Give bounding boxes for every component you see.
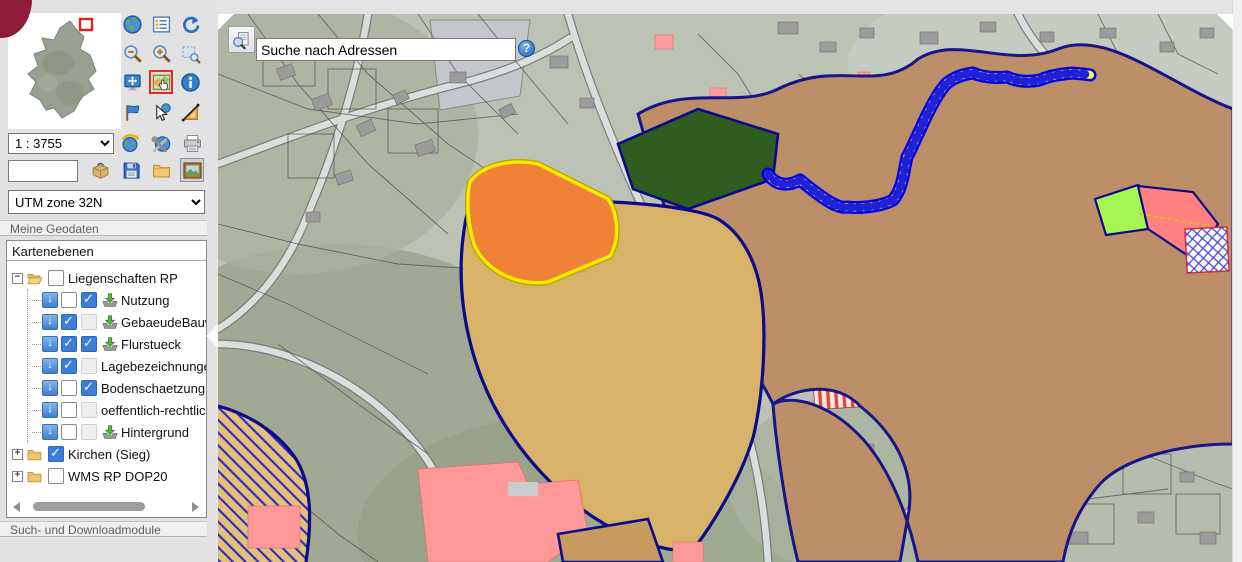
layer-checkbox-1[interactable] xyxy=(61,336,77,352)
map-canvas[interactable] xyxy=(218,14,1233,562)
map-corner-top-right xyxy=(1217,14,1233,30)
address-search-button[interactable] xyxy=(228,26,255,53)
layer-tree-hscrollbar[interactable] xyxy=(11,501,201,512)
scroll-thumb[interactable] xyxy=(33,502,145,511)
folder-closed-icon xyxy=(25,468,44,485)
group-label[interactable]: Kirchen (Sieg) xyxy=(68,447,150,462)
layer-row: ↓Lagebezeichnungen xyxy=(32,355,206,377)
layer-label[interactable]: Bodenschaetzung xyxy=(101,381,205,396)
expander-plus-icon[interactable]: + xyxy=(12,471,23,482)
layer-label[interactable]: Hintergrund xyxy=(121,425,189,440)
layer-down-arrow-button[interactable]: ↓ xyxy=(42,336,58,352)
layer-checkbox-2 xyxy=(81,402,97,418)
layer-label[interactable]: Nutzung xyxy=(121,293,169,308)
group-checkbox[interactable] xyxy=(48,270,64,286)
layer-checkbox-2[interactable] xyxy=(81,292,97,308)
layer-label[interactable]: GebaeudeBauwer xyxy=(121,315,207,330)
layer-checkbox-2 xyxy=(81,358,97,374)
scale-select[interactable]: 1 : 3755 xyxy=(8,133,114,154)
address-search-input[interactable] xyxy=(256,38,516,61)
layer-down-arrow-button[interactable]: ↓ xyxy=(42,380,58,396)
open-folder-icon[interactable] xyxy=(149,158,173,182)
sidebar: 1 : 3755 UTM zone 32N Meine Geodaten Kar… xyxy=(0,0,212,562)
layer-checkbox-1[interactable] xyxy=(61,314,77,330)
tree-guide xyxy=(32,300,41,301)
tree-group-row: +Kirchen (Sieg) xyxy=(11,443,206,465)
scroll-left-arrow-icon[interactable] xyxy=(13,502,20,512)
history-back-icon[interactable] xyxy=(178,12,202,36)
layer-checkbox-2[interactable] xyxy=(81,336,97,352)
layer-row: ↓Hintergrund xyxy=(32,421,206,443)
tree-group-row: +WMS RP DOP20 xyxy=(11,465,206,487)
layer-row: ↓GebaeudeBauwer xyxy=(32,311,206,333)
overview-extent-marker[interactable] xyxy=(80,19,92,30)
layer-tree-title: Kartenebenen xyxy=(7,241,206,261)
map-settings-icon[interactable] xyxy=(149,131,173,155)
state-outline-rlp xyxy=(28,21,96,118)
layer-down-arrow-button[interactable]: ↓ xyxy=(42,358,58,374)
layer-checkbox-2 xyxy=(81,314,97,330)
overview-map[interactable] xyxy=(8,13,121,129)
tree-guide xyxy=(32,344,41,345)
group-label[interactable]: WMS RP DOP20 xyxy=(68,469,167,484)
layer-label[interactable]: Flurstueck xyxy=(121,337,181,352)
redline-globe-icon[interactable] xyxy=(118,131,142,155)
globe-icon[interactable] xyxy=(120,12,144,36)
layer-tree: −Liegenschaften RP↓Nutzung↓GebaeudeBauwe… xyxy=(11,267,206,487)
map-viewport[interactable]: ? xyxy=(218,14,1233,562)
layer-checkbox-1[interactable] xyxy=(61,292,77,308)
section-such-downloadmodule[interactable]: Such- und Downloadmodule xyxy=(0,521,207,537)
layer-checkbox-2 xyxy=(81,424,97,440)
tree-children: ↓Nutzung↓GebaeudeBauwer↓Flurstueck↓Lageb… xyxy=(27,289,206,443)
layer-list-icon[interactable] xyxy=(149,12,173,36)
page-scroll-strip[interactable] xyxy=(1232,0,1242,562)
package-icon[interactable] xyxy=(88,158,112,182)
download-icon xyxy=(101,292,119,308)
tree-group-row: −Liegenschaften RP xyxy=(11,267,206,289)
print-icon[interactable] xyxy=(180,131,204,155)
image-export-icon[interactable] xyxy=(180,158,204,182)
group-checkbox[interactable] xyxy=(48,468,64,484)
layer-label[interactable]: Lagebezeichnungen xyxy=(101,359,207,374)
measure-icon[interactable] xyxy=(178,100,202,124)
layer-down-arrow-button[interactable]: ↓ xyxy=(42,314,58,330)
crs-select[interactable]: UTM zone 32N xyxy=(8,190,205,214)
help-icon[interactable]: ? xyxy=(518,40,535,57)
tree-guide xyxy=(32,432,41,433)
layer-down-arrow-button[interactable]: ↓ xyxy=(42,292,58,308)
expander-plus-icon[interactable]: + xyxy=(12,449,23,460)
layer-row: ↓Nutzung xyxy=(32,289,206,311)
layer-down-arrow-button[interactable]: ↓ xyxy=(42,424,58,440)
layer-checkbox-1[interactable] xyxy=(61,380,77,396)
scroll-right-arrow-icon[interactable] xyxy=(192,502,199,512)
tree-guide xyxy=(32,366,41,367)
layer-tree-panel: Kartenebenen −Liegenschaften RP↓Nutzung↓… xyxy=(6,240,207,518)
expander-minus-icon[interactable]: − xyxy=(12,273,23,284)
layer-down-arrow-button[interactable]: ↓ xyxy=(42,402,58,418)
tree-guide xyxy=(32,410,41,411)
layer-checkbox-1[interactable] xyxy=(61,424,77,440)
layer-label[interactable]: oeffentlich-rechtliche_ xyxy=(101,403,207,418)
zoom-out-icon[interactable] xyxy=(120,41,144,65)
coordinate-input[interactable] xyxy=(8,160,78,182)
flag-icon[interactable] xyxy=(120,100,144,124)
folder-closed-icon xyxy=(25,446,44,463)
section-meine-geodaten[interactable]: Meine Geodaten xyxy=(0,220,207,236)
search-document-icon xyxy=(231,30,251,50)
download-icon xyxy=(101,314,119,330)
zoom-rectangle-icon[interactable] xyxy=(178,41,202,65)
download-icon xyxy=(101,336,119,352)
info-icon[interactable] xyxy=(178,70,202,94)
layer-checkbox-1[interactable] xyxy=(61,358,77,374)
layer-row: ↓Bodenschaetzung xyxy=(32,377,206,399)
layer-checkbox-2[interactable] xyxy=(81,380,97,396)
group-checkbox[interactable] xyxy=(48,446,64,462)
sidebar-collapse-arrow[interactable] xyxy=(206,324,218,348)
group-label[interactable]: Liegenschaften RP xyxy=(68,271,178,286)
folder-open-icon xyxy=(25,270,44,287)
layer-row: ↓Flurstueck xyxy=(32,333,206,355)
select-features-icon[interactable] xyxy=(149,100,173,124)
tree-guide xyxy=(32,322,41,323)
zoom-in-icon[interactable] xyxy=(149,41,173,65)
layer-row: ↓oeffentlich-rechtliche_ xyxy=(32,399,206,421)
map-pan-hand-icon[interactable] xyxy=(149,70,173,94)
pan-screen-icon[interactable] xyxy=(120,70,144,94)
save-icon[interactable] xyxy=(119,158,143,182)
layer-checkbox-1[interactable] xyxy=(61,402,77,418)
download-icon xyxy=(101,424,119,440)
tree-guide xyxy=(32,388,41,389)
